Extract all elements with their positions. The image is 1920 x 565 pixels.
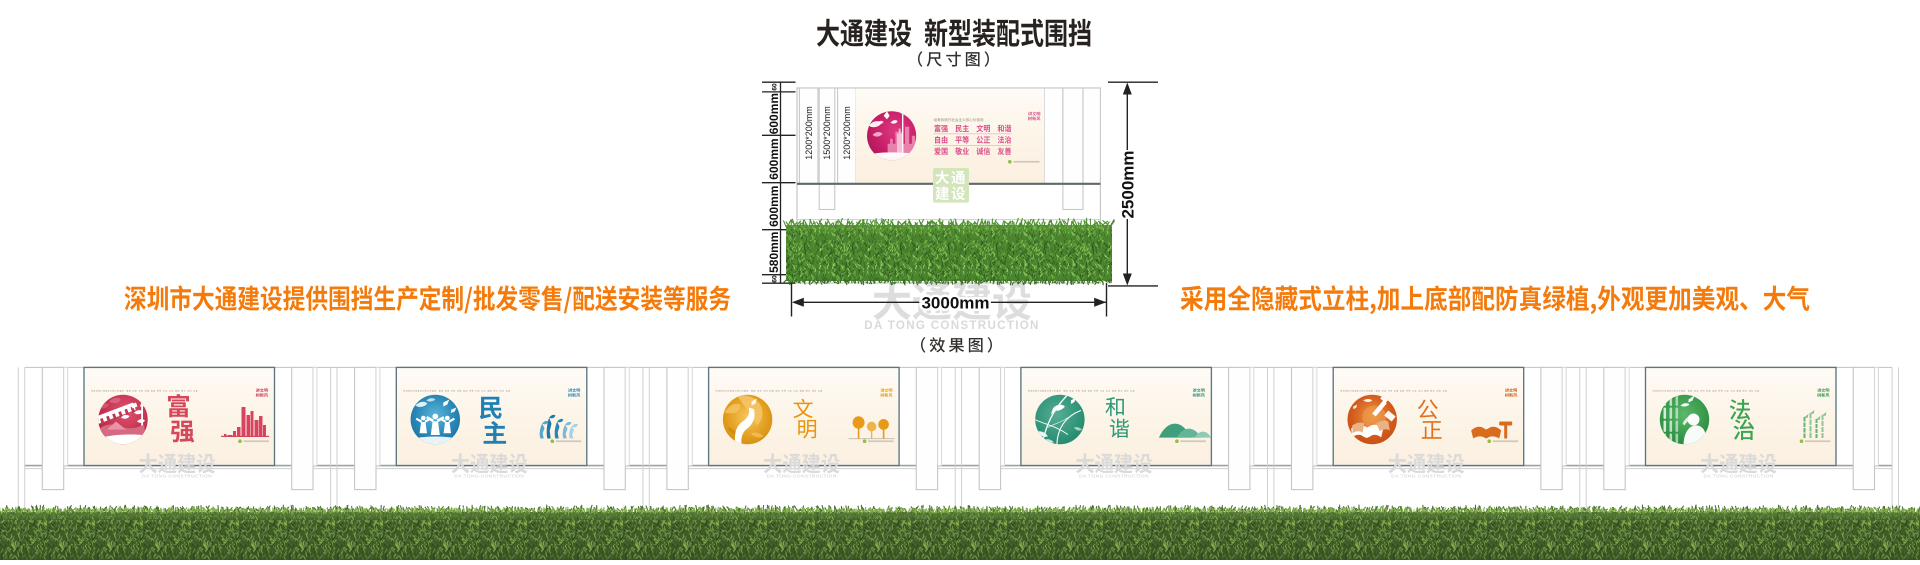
svg-text:DA TONG CONSTRUCTION: DA TONG CONSTRUCTION — [864, 319, 1039, 332]
svg-text:DA TONG CONSTRUCTION: DA TONG CONSTRUCTION — [1703, 474, 1773, 480]
svg-text:1500*200mm: 1500*200mm — [822, 106, 832, 160]
svg-text:600mm: 600mm — [767, 186, 781, 227]
svg-text:60: 60 — [772, 83, 779, 91]
svg-text:DA TONG CONSTRUCTION: DA TONG CONSTRUCTION — [142, 474, 212, 480]
svg-text:580mm: 580mm — [767, 232, 781, 273]
svg-text:600mm: 600mm — [767, 93, 781, 134]
svg-text:1200*200mm: 1200*200mm — [842, 106, 852, 160]
svg-text:600mm: 600mm — [767, 138, 781, 179]
svg-text:3000mm: 3000mm — [921, 293, 989, 312]
svg-text:2500mm: 2500mm — [1118, 150, 1137, 218]
svg-text:DA TONG CONSTRUCTION: DA TONG CONSTRUCTION — [1079, 474, 1149, 480]
svg-text:DA TONG CONSTRUCTION: DA TONG CONSTRUCTION — [1391, 474, 1461, 480]
svg-text:DA TONG CONSTRUCTION: DA TONG CONSTRUCTION — [767, 474, 837, 480]
svg-text:60: 60 — [772, 275, 779, 283]
svg-text:1200*200mm: 1200*200mm — [804, 106, 814, 160]
svg-text:DA TONG CONSTRUCTION: DA TONG CONSTRUCTION — [454, 474, 524, 480]
